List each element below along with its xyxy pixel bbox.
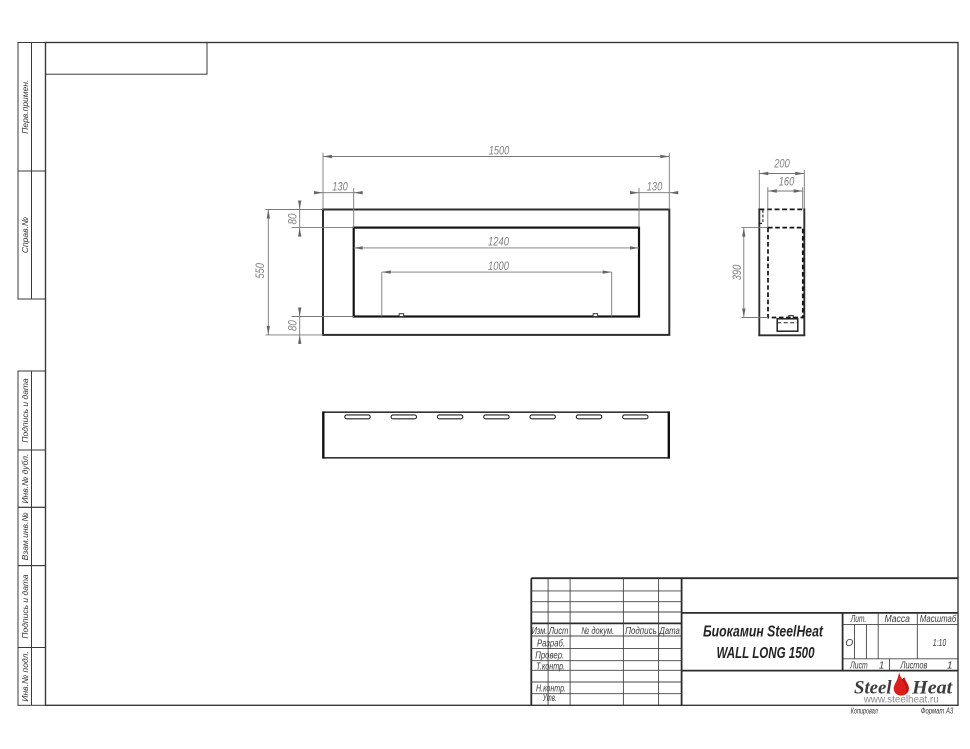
svg-text:WALL LONG 1500: WALL LONG 1500 <box>717 645 815 662</box>
svg-text:Биокамин SteelHeat: Биокамин SteelHeat <box>703 623 824 640</box>
svg-text:130: 130 <box>647 182 663 194</box>
svg-text:Разраб.: Разраб. <box>537 637 565 649</box>
svg-text:1500: 1500 <box>489 145 510 157</box>
svg-text:Инв.№ подл.: Инв.№ подл. <box>20 651 30 701</box>
svg-text:Перв.примен.: Перв.примен. <box>20 80 30 134</box>
svg-text:Провер.: Провер. <box>535 650 564 661</box>
svg-text:Лист: Лист <box>849 660 867 671</box>
svg-text:Взам.инв.№: Взам.инв.№ <box>20 512 30 560</box>
svg-text:Подпись и дата: Подпись и дата <box>20 378 30 443</box>
svg-text:1:10: 1:10 <box>933 638 947 649</box>
svg-text:200: 200 <box>773 159 790 171</box>
svg-text:www.steelheat.ru: www.steelheat.ru <box>863 694 939 706</box>
svg-text:160: 160 <box>779 177 795 189</box>
svg-text:Лист: Лист <box>548 626 568 637</box>
svg-text:Масштаб: Масштаб <box>920 613 957 625</box>
svg-text:Справ.№: Справ.№ <box>20 217 30 253</box>
svg-text:Листов: Листов <box>900 660 928 671</box>
svg-text:Утв.: Утв. <box>542 693 557 704</box>
svg-text:130: 130 <box>332 182 348 194</box>
svg-text:1000: 1000 <box>488 261 509 273</box>
svg-text:Подпись: Подпись <box>625 626 657 637</box>
svg-text:1240: 1240 <box>488 237 509 249</box>
svg-text:80: 80 <box>288 213 300 225</box>
svg-text:Формат А3: Формат А3 <box>921 706 954 716</box>
svg-text:Копировал: Копировал <box>851 706 878 716</box>
svg-text:№ докум.: № докум. <box>581 626 614 637</box>
svg-text:Изм.: Изм. <box>532 626 548 637</box>
svg-text:Инв.№ дубл.: Инв.№ дубл. <box>20 454 30 504</box>
svg-text:Дата: Дата <box>659 626 681 637</box>
svg-text:Т.контр.: Т.контр. <box>536 661 565 672</box>
svg-text:550: 550 <box>255 263 267 279</box>
svg-text:390: 390 <box>732 264 744 280</box>
svg-text:Масса: Масса <box>884 614 910 625</box>
svg-text:Лит.: Лит. <box>850 614 866 625</box>
svg-text:1: 1 <box>879 660 885 671</box>
svg-text:80: 80 <box>288 320 300 332</box>
svg-text:Подпись и дата: Подпись и дата <box>20 574 30 639</box>
svg-text:О: О <box>845 638 853 649</box>
svg-text:1: 1 <box>947 660 953 671</box>
